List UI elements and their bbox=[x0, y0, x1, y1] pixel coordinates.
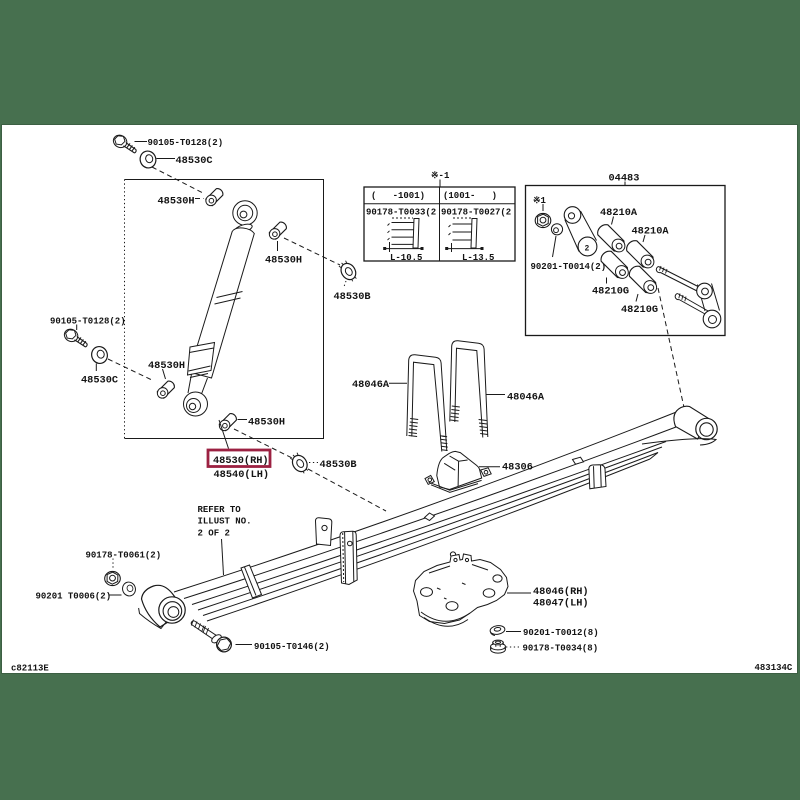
svg-text:90201-T0012(8): 90201-T0012(8) bbox=[523, 628, 599, 638]
svg-text:90201 T0006(2): 90201 T0006(2) bbox=[36, 591, 112, 601]
svg-text:48046A: 48046A bbox=[352, 379, 390, 391]
svg-text:※1: ※1 bbox=[533, 196, 547, 206]
svg-text:90178-T0027(2: 90178-T0027(2 bbox=[441, 207, 511, 217]
svg-text:90105-T0128(2): 90105-T0128(2) bbox=[148, 138, 224, 148]
svg-text:48046A: 48046A bbox=[507, 391, 545, 403]
svg-text:48047(LH): 48047(LH) bbox=[533, 597, 589, 609]
svg-text:90105-T0146(2): 90105-T0146(2) bbox=[254, 642, 330, 652]
svg-text:90178-T0033(2: 90178-T0033(2 bbox=[366, 207, 436, 217]
svg-text:2 OF 2: 2 OF 2 bbox=[198, 528, 230, 538]
svg-text:48210G: 48210G bbox=[592, 285, 629, 297]
svg-text:48530H: 48530H bbox=[248, 416, 285, 428]
svg-text:L-10.5: L-10.5 bbox=[390, 253, 422, 263]
svg-text:(1001- ): (1001- ) bbox=[443, 191, 497, 201]
svg-text:48530H: 48530H bbox=[265, 254, 302, 266]
svg-text:ILLUST NO.: ILLUST NO. bbox=[198, 516, 252, 526]
svg-text:90201-T0014(2): 90201-T0014(2) bbox=[531, 262, 607, 272]
svg-text:48210A: 48210A bbox=[632, 226, 670, 238]
svg-text:48530C: 48530C bbox=[81, 374, 118, 386]
svg-text:L-13.5: L-13.5 bbox=[462, 253, 494, 263]
svg-text:48540(LH): 48540(LH) bbox=[214, 469, 270, 481]
svg-text:90105-T0128(2): 90105-T0128(2) bbox=[50, 317, 126, 327]
svg-text:c82113E: c82113E bbox=[11, 663, 49, 673]
svg-text:48530H: 48530H bbox=[158, 195, 195, 207]
svg-text:REFER TO: REFER TO bbox=[198, 505, 242, 515]
svg-text:483134C: 483134C bbox=[755, 663, 793, 673]
svg-text:48046(RH): 48046(RH) bbox=[533, 586, 589, 598]
svg-text:48530B: 48530B bbox=[320, 459, 357, 471]
svg-text:48210G: 48210G bbox=[621, 304, 658, 316]
svg-text:48530H: 48530H bbox=[148, 360, 185, 372]
svg-text:48210A: 48210A bbox=[600, 207, 638, 219]
svg-text:48530B: 48530B bbox=[334, 291, 371, 303]
svg-text:90178-T0061(2): 90178-T0061(2) bbox=[86, 550, 162, 560]
svg-text:( -1001): ( -1001) bbox=[371, 191, 425, 201]
svg-text:04483: 04483 bbox=[609, 172, 640, 184]
svg-text:2: 2 bbox=[585, 245, 590, 254]
svg-text:90178-T0034(8): 90178-T0034(8) bbox=[523, 643, 599, 653]
svg-text:48530(RH): 48530(RH) bbox=[213, 455, 269, 467]
svg-text:48530C: 48530C bbox=[176, 155, 213, 167]
svg-text:48306: 48306 bbox=[502, 461, 533, 473]
